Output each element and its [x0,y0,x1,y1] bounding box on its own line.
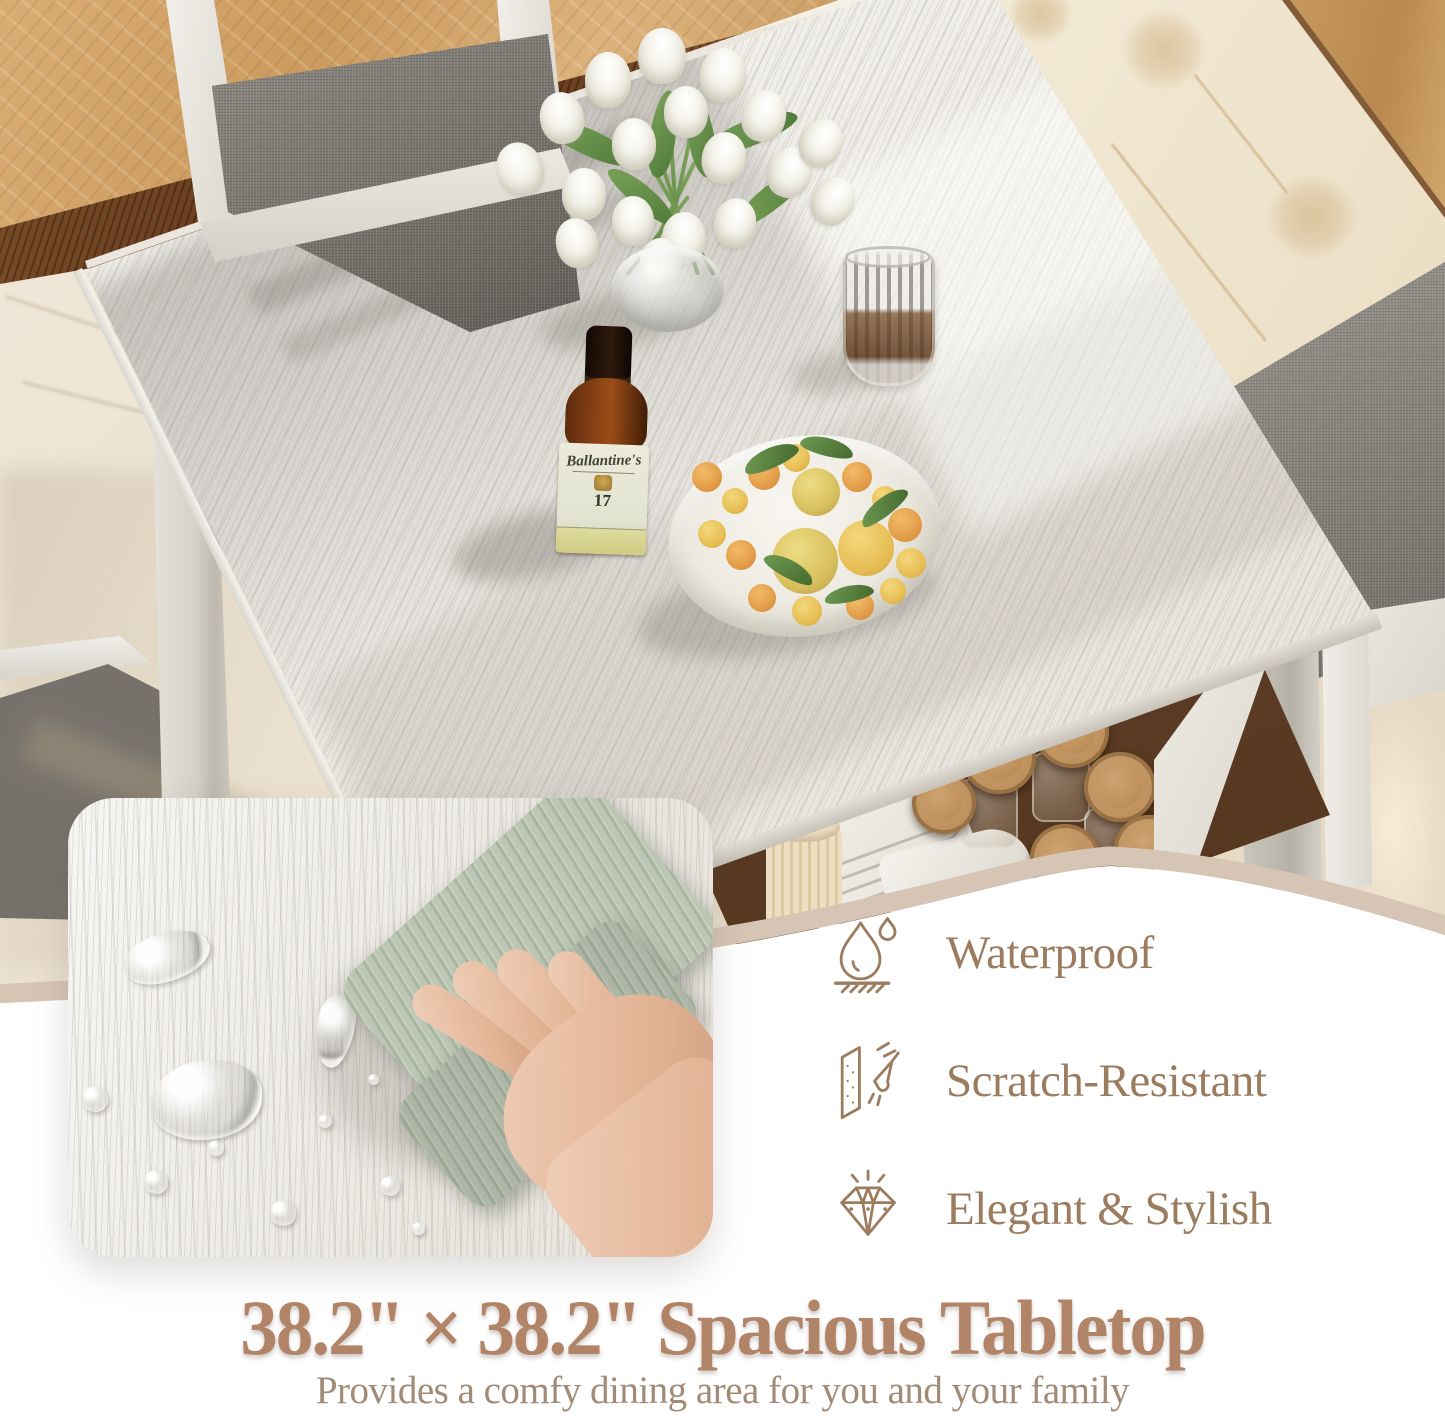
water-droplet [380,1176,400,1196]
water-droplet [118,921,217,994]
water-drop-icon [830,912,904,994]
feature-elegant-stylish: Elegant & Stylish [830,1168,1272,1250]
water-droplet [150,1060,262,1140]
product-feature-image: Ballantine's 17 [0,0,1445,1421]
feature-scratch-resistant: Scratch-Resistant [830,1040,1266,1122]
feature-waterproof: Waterproof [830,912,1154,994]
scratch-resistant-icon [830,1040,904,1122]
waterproof-inset [68,798,713,1257]
water-droplet [270,1200,296,1226]
water-droplet [208,1140,224,1156]
headline-subtitle: Provides a comfy dining area for you and… [0,1368,1445,1413]
feature-label: Elegant & Stylish [946,1182,1272,1236]
water-droplet [318,1114,332,1128]
headline-title: 38.2" × 38.2" Spacious Tabletop [0,1284,1445,1373]
feature-label: Scratch-Resistant [946,1054,1266,1108]
feature-label: Waterproof [946,926,1154,980]
water-droplet [82,1086,108,1112]
water-droplet [368,1074,379,1085]
water-droplet [144,1170,168,1194]
water-droplet [412,1222,425,1235]
diamond-icon [830,1168,904,1250]
